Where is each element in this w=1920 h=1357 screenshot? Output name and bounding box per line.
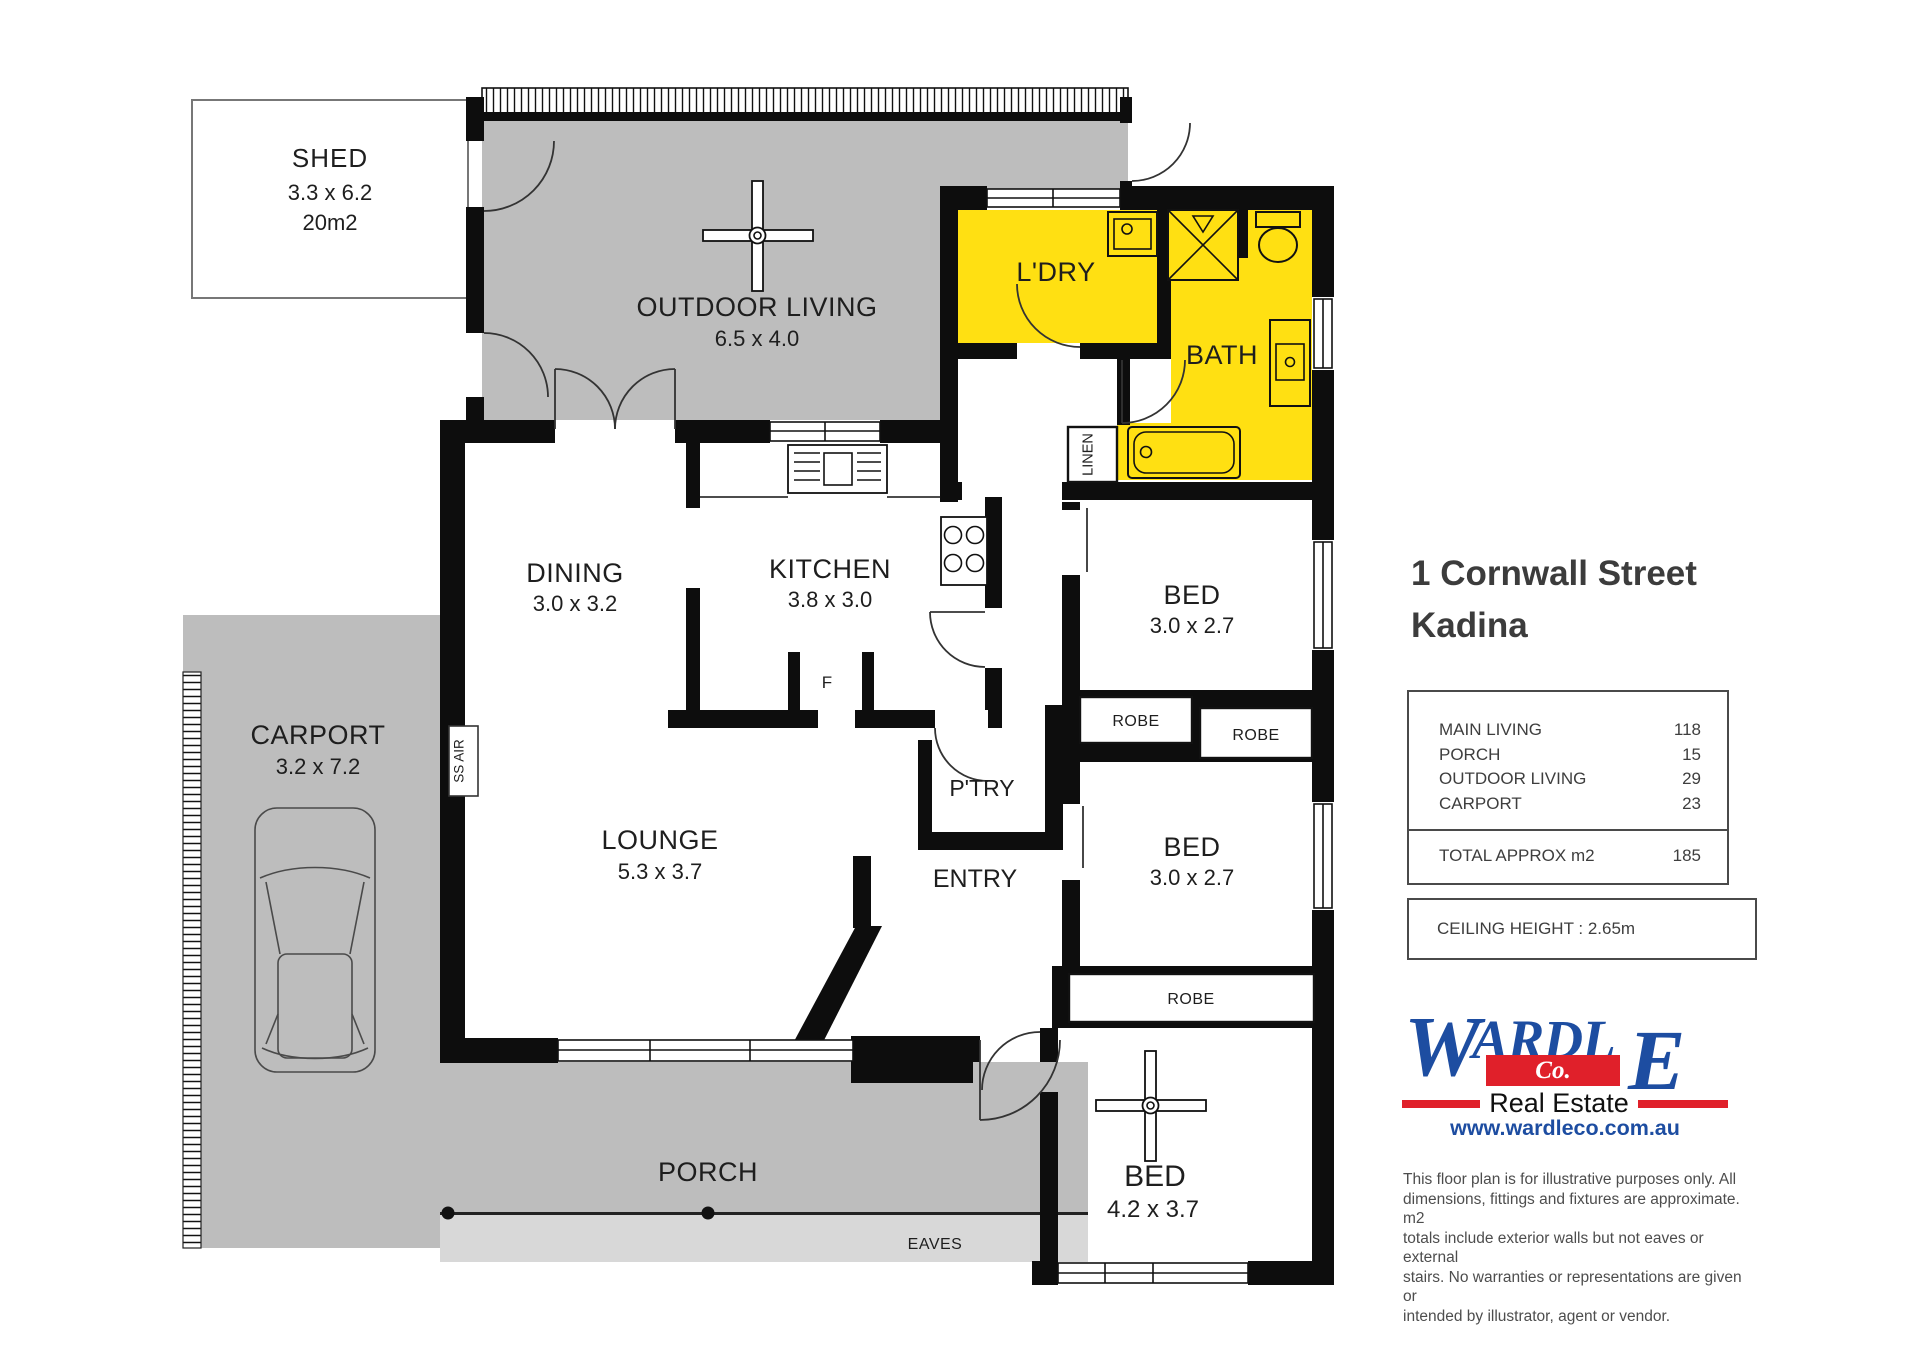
room-label-laundry: L'DRY	[1016, 257, 1095, 287]
deck-edge-hatch	[482, 88, 1128, 114]
disclaimer-line: dimensions, fittings and fixtures are ap…	[1403, 1190, 1743, 1229]
toilet-icon	[1256, 212, 1300, 262]
room-label-bed3: BED	[1124, 1160, 1186, 1193]
room-label-linen: LINEN	[1081, 433, 1097, 476]
bed3-window	[1058, 1263, 1248, 1283]
room-label-outdoor-living: OUTDOOR LIVING	[636, 292, 877, 322]
laundry-sink-icon	[1108, 212, 1157, 256]
red-bar	[1638, 1100, 1728, 1108]
porch-post	[442, 1207, 455, 1220]
table-total-row: TOTAL APPROX m2 185	[1409, 829, 1727, 883]
bath-window	[1314, 299, 1332, 368]
table-row: CARPORT 23	[1439, 792, 1701, 817]
carport-fence	[183, 672, 201, 1248]
disclaimer-line: intended by illustrator, agent or vendor…	[1403, 1307, 1743, 1327]
laundry-window	[987, 189, 1120, 207]
room-dims-carport: 3.2 x 7.2	[276, 754, 360, 779]
kitchen-window	[770, 422, 880, 441]
label-ss-air: SS AIR	[452, 739, 467, 783]
porch-area	[440, 1062, 1088, 1262]
logo-tagline-row: Real Estate	[1400, 1088, 1730, 1119]
room-label-porch: PORCH	[658, 1157, 758, 1187]
room-dims-kitchen: 3.8 x 3.0	[788, 587, 872, 612]
porch-post	[702, 1207, 715, 1220]
room-dims-dining: 3.0 x 3.2	[533, 591, 617, 616]
ceiling-height-box: CEILING HEIGHT : 2.65m	[1407, 898, 1757, 960]
logo-tagline: Real Estate	[1489, 1088, 1629, 1119]
logo-co-badge: Co.	[1486, 1055, 1620, 1086]
room-label-kitchen: KITCHEN	[769, 554, 891, 584]
bed2-window	[1314, 804, 1332, 908]
kitchen-sink-icon	[700, 445, 941, 497]
area-value: 15	[1682, 743, 1701, 768]
disclaimer-line: totals include exterior walls but not ea…	[1403, 1229, 1743, 1268]
area-label: MAIN LIVING	[1439, 718, 1542, 743]
shed-label: SHED	[292, 143, 368, 173]
room-dims-bed2: 3.0 x 2.7	[1150, 865, 1234, 890]
floor-plan: SHED 3.3 x 6.2 20m2	[0, 0, 1920, 1357]
table-row: PORCH 15	[1439, 743, 1701, 768]
label-robe2: ROBE	[1232, 727, 1279, 744]
address-line1: 1 Cornwall Street	[1411, 548, 1697, 600]
disclaimer-line: stairs. No warranties or representations…	[1403, 1268, 1743, 1307]
room-dims-bed3: 4.2 x 3.7	[1107, 1196, 1199, 1223]
disclaimer-line: This floor plan is for illustrative purp…	[1403, 1170, 1743, 1190]
room-label-entry: ENTRY	[933, 865, 1018, 893]
logo-letter-w: W	[1404, 996, 1480, 1096]
room-label-carport: CARPORT	[250, 720, 385, 750]
lounge-window	[558, 1040, 853, 1061]
disclaimer-text: This floor plan is for illustrative purp…	[1403, 1170, 1743, 1326]
total-label: TOTAL APPROX m2	[1439, 846, 1595, 866]
logo-website: www.wardleco.com.au	[1400, 1116, 1730, 1141]
room-label-dining: DINING	[526, 558, 624, 588]
property-address: 1 Cornwall Street Kadina	[1411, 548, 1697, 652]
floorplan-page: SHED 3.3 x 6.2 20m2	[0, 0, 1920, 1357]
pantry-door-arc	[935, 728, 988, 781]
area-label: CARPORT	[1439, 792, 1522, 817]
label-robe1: ROBE	[1112, 713, 1159, 730]
area-label: PORCH	[1439, 743, 1500, 768]
room-label-lounge: LOUNGE	[601, 825, 718, 855]
shed-area: 20m2	[302, 210, 357, 235]
carport-area	[183, 615, 460, 1248]
wardle-logo: W ARDL E Co. Real Estate www.wardleco.co…	[1400, 1002, 1730, 1144]
cooktop-icon	[941, 517, 987, 585]
vanity-icon	[1270, 320, 1310, 406]
area-value: 23	[1682, 792, 1701, 817]
room-dims-outdoor-living: 6.5 x 4.0	[715, 326, 799, 351]
shed: SHED 3.3 x 6.2 20m2	[192, 100, 468, 298]
table-row: MAIN LIVING 118	[1439, 718, 1701, 743]
room-label-pantry: P'TRY	[949, 775, 1014, 801]
side-exterior-door-arc	[1132, 123, 1190, 181]
room-dims-lounge: 5.3 x 3.7	[618, 859, 702, 884]
bed1-window	[1314, 542, 1332, 648]
label-eaves: EAVES	[908, 1236, 963, 1253]
ceiling-fan-icon	[1096, 1051, 1206, 1161]
bathtub-icon	[1128, 427, 1240, 478]
area-summary-table: MAIN LIVING 118 PORCH 15 OUTDOOR LIVING …	[1407, 690, 1729, 885]
room-dims-bed1: 3.0 x 2.7	[1150, 613, 1234, 638]
room-label-bed1: BED	[1163, 580, 1220, 610]
area-value: 118	[1674, 718, 1701, 743]
table-row: OUTDOOR LIVING 29	[1439, 767, 1701, 792]
total-value: 185	[1673, 846, 1701, 866]
area-value: 29	[1682, 767, 1701, 792]
shed-dims: 3.3 x 6.2	[288, 180, 372, 205]
shower-icon	[1168, 210, 1238, 280]
address-line2: Kadina	[1411, 600, 1697, 652]
label-fridge: F	[822, 673, 832, 692]
room-label-bed2: BED	[1163, 832, 1220, 862]
label-robe3: ROBE	[1167, 991, 1214, 1008]
kitchen-door	[930, 612, 985, 667]
area-label: OUTDOOR LIVING	[1439, 767, 1586, 792]
room-label-bath: BATH	[1186, 340, 1258, 370]
ceiling-height-text: CEILING HEIGHT : 2.65m	[1437, 919, 1635, 939]
red-bar	[1402, 1100, 1480, 1108]
